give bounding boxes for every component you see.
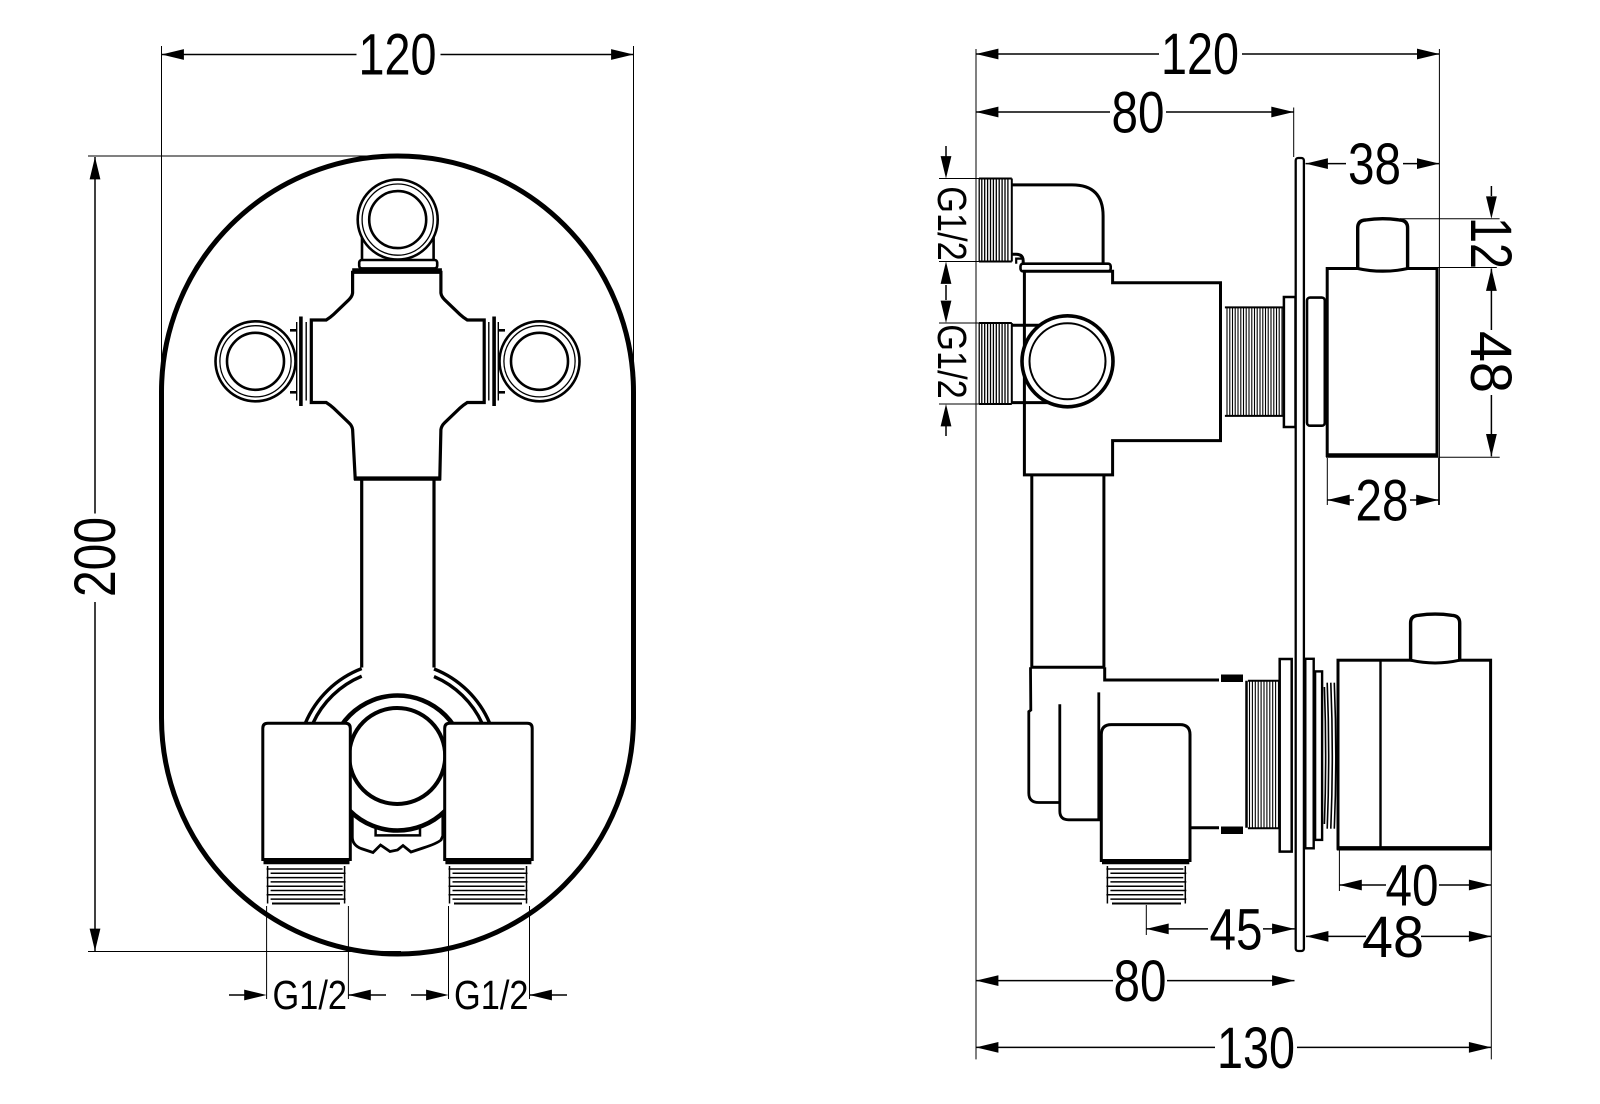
svg-text:G1/2: G1/2	[929, 324, 975, 399]
svg-text:G1/2: G1/2	[929, 186, 975, 261]
svg-text:200: 200	[63, 517, 128, 597]
svg-text:130: 130	[1217, 1016, 1295, 1081]
svg-text:28: 28	[1356, 469, 1409, 534]
svg-text:48: 48	[1362, 905, 1424, 970]
svg-text:120: 120	[359, 23, 437, 88]
svg-text:G1/2: G1/2	[454, 972, 529, 1018]
svg-text:45: 45	[1210, 897, 1263, 962]
svg-text:G1/2: G1/2	[273, 972, 348, 1018]
svg-text:120: 120	[1161, 22, 1239, 87]
svg-text:48: 48	[1458, 331, 1523, 393]
svg-text:12: 12	[1458, 217, 1523, 269]
svg-text:80: 80	[1112, 81, 1165, 146]
svg-text:38: 38	[1348, 132, 1401, 197]
svg-text:80: 80	[1114, 949, 1167, 1014]
